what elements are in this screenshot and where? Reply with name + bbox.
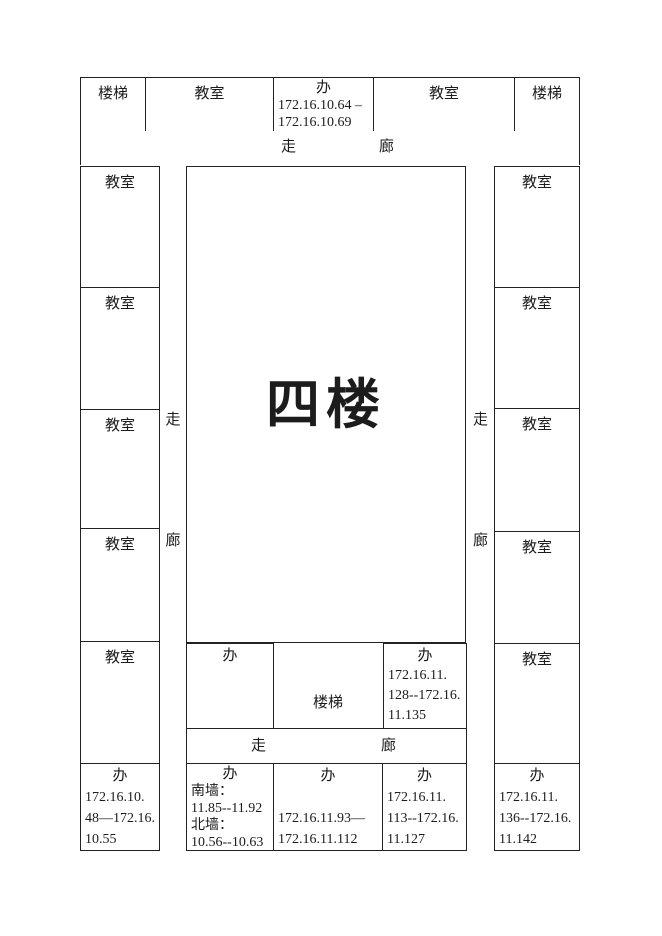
office-label: 办 <box>384 646 466 666</box>
room-classroom-left-5: 教室 <box>80 641 160 764</box>
room-classroom-left-1: 教室 <box>80 166 160 288</box>
corridor-walk-label: 走 <box>251 738 266 754</box>
office-ip-line: 172.16.11. <box>495 787 579 808</box>
classroom-label: 教室 <box>522 652 552 668</box>
classroom-label: 教室 <box>105 175 135 191</box>
office-ip-line: 172.16.10.64 – <box>274 97 373 114</box>
office-wall-line: 南墙： <box>187 783 273 800</box>
office-label: 办 <box>383 766 466 787</box>
office-label: 办 <box>187 646 273 667</box>
room-classroom-right-3: 教室 <box>494 408 580 532</box>
floor-plan-page: 楼梯 教室 办 172.16.10.64 – 172.16.10.69 教室 楼… <box>0 0 662 936</box>
corridor-hall-label: 廊 <box>379 139 394 155</box>
room-office-bottom-2: 办 南墙： 11.85--11.92 北墙： 10.56--10.63 <box>186 763 274 851</box>
classroom-label: 教室 <box>522 540 552 556</box>
office-ip-line: 172.16.10.69 <box>274 114 373 131</box>
room-office-top: 办 172.16.10.64 – 172.16.10.69 <box>273 77 374 132</box>
floor-title: 四楼 <box>266 378 386 432</box>
office-ip-line: 113--172.16. <box>383 808 466 829</box>
room-classroom-left-4: 教室 <box>80 528 160 642</box>
office-ip-line: 172.16.11.112 <box>274 829 382 850</box>
office-ip-line: 172.16.11.93— <box>274 808 382 829</box>
room-classroom-right-2: 教室 <box>494 287 580 409</box>
corridor-top: 走 廊 <box>80 131 580 165</box>
office-wall-line: 北墙： <box>187 817 273 834</box>
office-label: 办 <box>274 80 373 97</box>
office-ip-line: 172.16.11. <box>384 666 466 686</box>
stairs-inner-label: 楼梯 <box>273 695 383 712</box>
classroom-label: 教室 <box>105 537 135 553</box>
corridor-right-hall-label: 廊 <box>467 533 494 550</box>
office-ip-line: 172.16.11. <box>383 787 466 808</box>
office-ip-line: 128--172.16. <box>384 686 466 706</box>
classroom-label: 教室 <box>429 86 459 102</box>
room-classroom-left-2: 教室 <box>80 287 160 410</box>
classroom-label: 教室 <box>105 418 135 434</box>
room-classroom-right-5: 教室 <box>494 643 580 764</box>
corridor-right-walk-label: 走 <box>467 412 494 429</box>
corridor-walk-label: 走 <box>281 139 296 155</box>
stairs-label: 楼梯 <box>532 86 562 102</box>
classroom-label: 教室 <box>105 296 135 312</box>
office-label: 办 <box>187 766 273 783</box>
office-ip-line: 10.55 <box>81 829 159 850</box>
office-label: 办 <box>81 766 159 787</box>
office-ip-line: 48—172.16. <box>81 808 159 829</box>
office-ip-line: 11.142 <box>495 829 579 850</box>
corridor-left-hall-label: 廊 <box>160 533 186 550</box>
office-ip-line: 10.56--10.63 <box>187 834 273 851</box>
room-classroom-left-3: 教室 <box>80 409 160 529</box>
office-ip-line: 136--172.16. <box>495 808 579 829</box>
classroom-label: 教室 <box>194 86 224 102</box>
central-hall: 四楼 <box>186 166 466 643</box>
room-office-bottom-5: 办 172.16.11. 136--172.16. 11.142 <box>494 763 580 851</box>
office-label: 办 <box>274 766 382 787</box>
classroom-label: 教室 <box>522 296 552 312</box>
room-office-inner-left: 办 <box>186 643 274 729</box>
room-classroom-top-right: 教室 <box>373 77 515 132</box>
classroom-label: 教室 <box>522 175 552 191</box>
room-stairs-top-right: 楼梯 <box>514 77 580 132</box>
corridor-hall-label: 廊 <box>381 738 396 754</box>
room-classroom-right-4: 教室 <box>494 531 580 644</box>
corridor-left-walk-label: 走 <box>160 412 186 429</box>
room-classroom-top-left: 教室 <box>145 77 274 132</box>
office-ip-line <box>274 787 382 808</box>
room-office-bottom-3: 办 172.16.11.93— 172.16.11.112 <box>273 763 383 851</box>
office-ip-line: 11.85--11.92 <box>187 800 273 817</box>
room-office-inner-right: 办 172.16.11. 128--172.16. 11.135 <box>383 643 467 729</box>
office-ip-line: 11.127 <box>383 829 466 850</box>
office-ip-line: 11.135 <box>384 706 466 726</box>
corridor-inner: 走 廊 <box>186 728 467 763</box>
room-classroom-right-1: 教室 <box>494 166 580 288</box>
stairs-label: 楼梯 <box>98 86 128 102</box>
room-office-bottom-1: 办 172.16.10. 48—172.16. 10.55 <box>80 763 160 851</box>
room-office-bottom-4: 办 172.16.11. 113--172.16. 11.127 <box>382 763 467 851</box>
office-ip-line: 172.16.10. <box>81 787 159 808</box>
classroom-label: 教室 <box>105 650 135 666</box>
room-stairs-top-left: 楼梯 <box>80 77 146 132</box>
office-label: 办 <box>495 766 579 787</box>
classroom-label: 教室 <box>522 417 552 433</box>
